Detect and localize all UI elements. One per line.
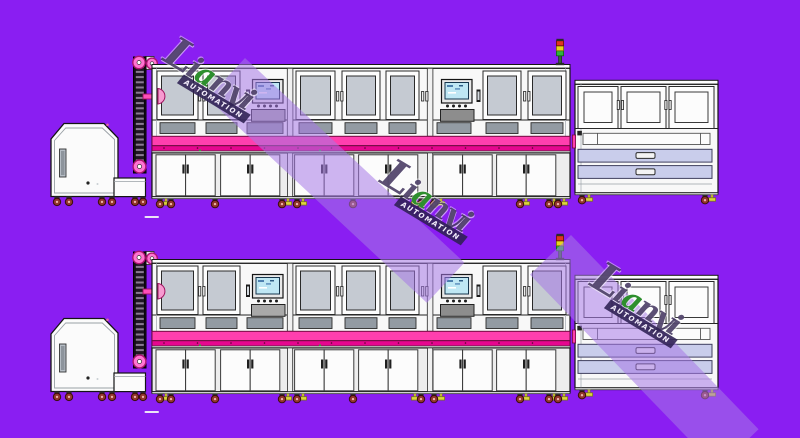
cabinet-doors xyxy=(152,153,570,199)
window-panels xyxy=(157,71,566,120)
signal-tower xyxy=(556,234,564,260)
unload-station xyxy=(572,275,718,399)
reference-dash xyxy=(145,411,160,413)
signal-tower xyxy=(556,39,564,65)
cabinet-doors xyxy=(152,348,570,394)
window-panels xyxy=(157,266,566,315)
conveyor-belt xyxy=(152,136,570,153)
caster-wheels xyxy=(156,394,567,403)
production-line-row-1 xyxy=(0,0,800,222)
hopper-feeder xyxy=(51,124,146,206)
unload-station xyxy=(572,80,718,204)
vent-recess-band xyxy=(160,123,563,134)
vent-recess-band xyxy=(160,318,563,329)
conveyor-belt xyxy=(152,331,570,348)
cad-drawing-canvas: Lianyi AUTOMATION Lianyi AUTOMATION Lian… xyxy=(0,0,800,438)
hopper-feeder xyxy=(51,319,146,401)
production-line-row-2 xyxy=(0,195,800,417)
